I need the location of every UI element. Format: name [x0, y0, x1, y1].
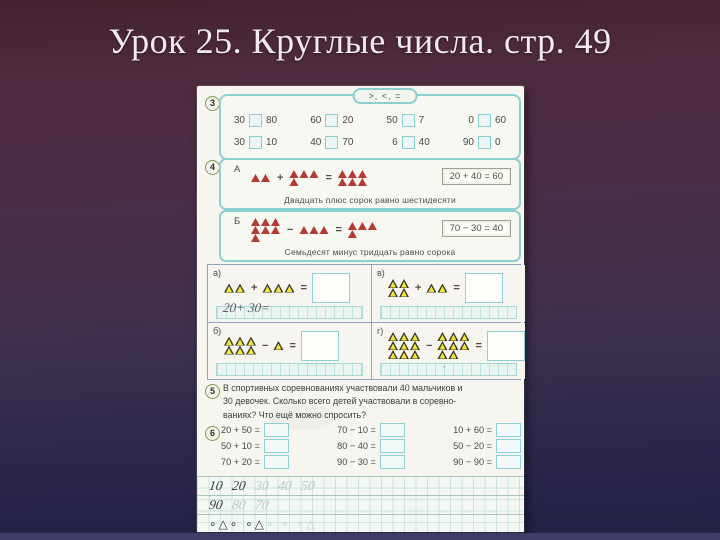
triangle-group	[437, 332, 470, 359]
equals-sign: =	[300, 282, 306, 294]
exercise-4-badge: 4	[205, 160, 220, 175]
comparison-cell: 3010	[233, 136, 278, 149]
exercise-4b-box: Б − = 70 − 30 = 40 Семьдесят минус тридц…	[219, 210, 521, 262]
shape-pattern: ∘△∘ ∘△	[209, 517, 266, 531]
comparison-row: 3010 4070 640 900	[233, 131, 507, 153]
writing-strip: ·	[380, 363, 517, 376]
triangle-group	[273, 341, 284, 350]
triangle-group	[388, 332, 421, 359]
equation-row: 70 + 20 =	[221, 456, 289, 468]
equation-row: 10 + 60 =	[453, 424, 521, 436]
equals-sign: =	[289, 340, 295, 352]
answer-box	[249, 136, 262, 149]
answer-box	[380, 455, 405, 469]
equals-sign: =	[453, 282, 459, 294]
comparison-cell: 060	[462, 114, 507, 127]
minus-sign: −	[287, 224, 293, 236]
quadrant-grid: а) + = 20+ 30= в) + = б)	[207, 264, 521, 380]
triangle-equation: + =	[388, 274, 525, 302]
comparison-rows: 3080 6020 507 060 3010 4070 640 900	[221, 96, 519, 153]
answer-box	[301, 331, 339, 361]
comparison-cell: 3080	[233, 114, 278, 127]
handwriting-row: 90 80 70	[197, 495, 524, 514]
quad-cell-v: в) + =	[372, 265, 525, 322]
equation-column: 70 − 10 = 80 − 40 = 90 − 30 =	[337, 424, 405, 468]
pattern-row: ∘△∘ ∘△ ∘ ∘ ∘△	[197, 514, 524, 533]
answer-box	[380, 423, 405, 437]
handwriting-row: 10 20 30 40 50	[197, 476, 524, 495]
word-problem-line: ваниях? Что ещё можно спросить?	[223, 409, 519, 422]
equation-box: 70 − 30 = 40	[442, 220, 511, 237]
answer-box	[496, 423, 521, 437]
answer-box	[264, 455, 289, 469]
answer-box	[264, 439, 289, 453]
answer-box	[478, 136, 491, 149]
word-problem-line: 30 девочек. Сколько всего детей участвов…	[223, 395, 519, 408]
answer-box	[380, 439, 405, 453]
equation-column: 20 + 50 = 50 + 10 = 70 + 20 =	[221, 424, 289, 468]
graph-paper: 10 20 30 40 50 90 80 70 ∘△∘ ∘△ ∘ ∘ ∘△	[197, 476, 524, 532]
exercise-3-badge: 3	[205, 96, 220, 111]
triangle-equation: + =	[251, 163, 368, 193]
triangle-group	[388, 279, 410, 297]
comparison-cell: 640	[386, 136, 431, 149]
triangle-group	[224, 337, 257, 355]
comparison-signs-pill: >, <, =	[353, 88, 418, 104]
quad-cell-b: б) − =	[208, 323, 371, 380]
equation-column: 10 + 60 = 50 − 20 = 90 − 90 =	[453, 424, 521, 468]
shape-pattern-faint: ∘ ∘ ∘△	[266, 517, 317, 531]
triangle-group	[262, 284, 295, 293]
triangle-group	[426, 284, 448, 293]
equation-row: 80 − 40 =	[337, 440, 405, 452]
quad-cell-g: г) − = ·	[372, 323, 525, 380]
exercise-4a-box: А + = 20 + 40 = 60 Двадцать плюс сорок р…	[219, 158, 521, 210]
exercise-6-equations: 20 + 50 = 50 + 10 = 70 + 20 = 70 − 10 = …	[221, 424, 521, 468]
comparison-cell: 6020	[309, 114, 354, 127]
slide-title: Урок 25. Круглые числа. стр. 49	[0, 20, 720, 62]
quad-cell-a: а) + = 20+ 30=	[208, 265, 371, 322]
answer-box	[325, 136, 338, 149]
exercise-5-badge: 5	[205, 384, 220, 399]
triangle-group	[338, 170, 368, 186]
equation-caption: Семьдесят минус тридцать равно сорока	[221, 247, 519, 257]
writing-strip: 20+ 30=	[216, 306, 363, 319]
answer-box	[264, 423, 289, 437]
equation-caption: Двадцать плюс сорок равно шестидесяти	[221, 195, 519, 205]
equals-sign: =	[475, 340, 481, 352]
answer-box	[465, 273, 503, 303]
answer-box	[325, 114, 338, 127]
answer-box	[496, 439, 521, 453]
comparison-cell: 507	[386, 114, 431, 127]
comparison-cell: 4070	[309, 136, 354, 149]
minus-sign: −	[262, 340, 268, 352]
part-label: А	[234, 164, 240, 175]
part-label: Б	[234, 216, 240, 227]
answer-box	[402, 114, 415, 127]
answer-box	[312, 273, 350, 303]
triangle-equation: − =	[388, 332, 525, 360]
comparison-cell: 900	[462, 136, 507, 149]
plus-sign: +	[415, 282, 421, 294]
triangle-group	[289, 170, 319, 186]
equation-row: 90 − 30 =	[337, 456, 405, 468]
equation-row: 70 − 10 =	[337, 424, 405, 436]
triangle-group	[251, 218, 281, 242]
comparison-row: 3080 6020 507 060	[233, 109, 507, 131]
plus-sign: +	[277, 172, 283, 184]
triangle-group	[299, 226, 329, 234]
equation-row: 50 − 20 =	[453, 440, 521, 452]
triangle-equation: − =	[224, 332, 371, 360]
equals-sign: =	[335, 224, 341, 236]
writing-strip	[380, 306, 517, 319]
answer-box	[249, 114, 262, 127]
triangle-group	[224, 284, 246, 293]
answer-box	[487, 331, 525, 361]
writing-strip	[216, 363, 363, 376]
word-problem: В спортивных соревнованиях участвовали 4…	[223, 382, 519, 422]
minus-sign: −	[426, 340, 432, 352]
slide-bottom-strip	[0, 533, 720, 540]
workbook-page: 3 >, <, = 3080 6020 507 060 3010 4070 64…	[197, 86, 524, 532]
exercise-6-badge: 6	[205, 426, 220, 441]
triangle-equation: + =	[224, 274, 371, 302]
answer-box	[402, 136, 415, 149]
triangle-group	[348, 222, 378, 238]
equation-row: 20 + 50 =	[221, 424, 289, 436]
word-problem-line: В спортивных соревнованиях участвовали 4…	[223, 382, 519, 395]
answer-box	[478, 114, 491, 127]
handwriting: 20+ 30=	[222, 300, 270, 316]
answer-box	[496, 455, 521, 469]
equation-row: 50 + 10 =	[221, 440, 289, 452]
triangle-group	[251, 174, 271, 182]
equals-sign: =	[325, 172, 331, 184]
exercise-3-box: >, <, = 3080 6020 507 060 3010 4070 640 …	[219, 94, 521, 160]
plus-sign: +	[251, 282, 257, 294]
triangle-equation: − =	[251, 215, 378, 245]
handwriting: ·	[443, 362, 446, 372]
equation-box: 20 + 40 = 60	[442, 168, 511, 185]
equation-row: 90 − 90 =	[453, 456, 521, 468]
